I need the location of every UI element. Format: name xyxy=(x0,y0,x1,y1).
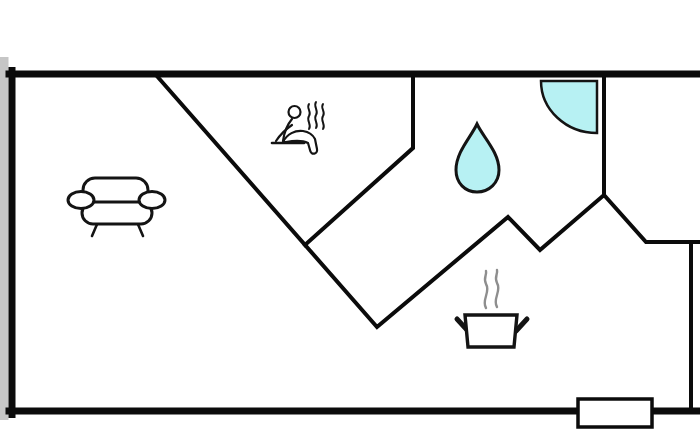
sauna-heat-waves-icon xyxy=(308,102,324,129)
heat-wave xyxy=(322,104,324,129)
floor-plan-image xyxy=(0,0,700,436)
steam-wave xyxy=(496,270,499,307)
heat-wave xyxy=(315,102,317,128)
heat-wave xyxy=(308,104,310,129)
wall-shadow xyxy=(0,57,9,420)
sofa-armrest-right xyxy=(139,192,165,209)
sofa-icon xyxy=(68,178,165,236)
floor-plan-drawing xyxy=(0,0,700,436)
sofa-armrest-left xyxy=(68,192,94,209)
cooking-pot-icon xyxy=(457,270,527,347)
sauna-person-icon xyxy=(272,102,324,154)
interior-wall-zigzag xyxy=(156,75,700,327)
pot-body xyxy=(465,315,517,347)
steam-wave xyxy=(485,271,488,308)
door-window-marker xyxy=(578,399,652,427)
water-drop-icon xyxy=(456,124,499,192)
person-head xyxy=(289,106,301,118)
interior-wall-sauna-right xyxy=(305,73,413,245)
pot-steam-icon xyxy=(485,270,499,308)
corner-shower-icon xyxy=(541,81,597,133)
